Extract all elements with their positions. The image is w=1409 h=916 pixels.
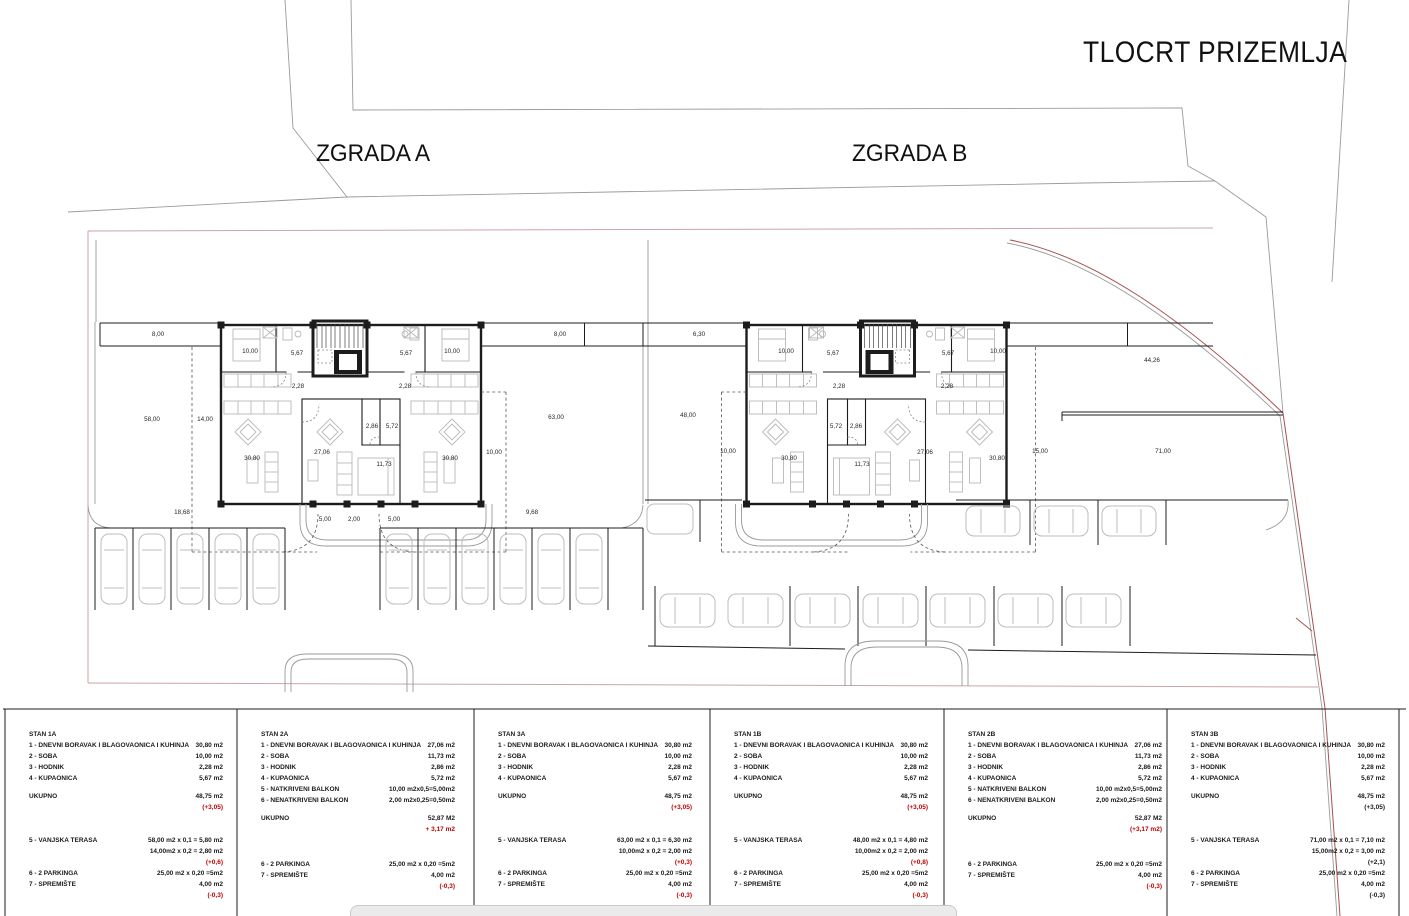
row-label: 3 - HODNIK	[968, 762, 1003, 773]
row-value: 2,28 m2	[199, 762, 223, 773]
legend-row: (+2,1)	[1191, 857, 1385, 868]
row-label: 5 - VANJSKA TERASA	[29, 835, 97, 846]
row-value: (-0,3)	[912, 890, 928, 901]
row-value: 4,00 m2	[1361, 879, 1385, 890]
spacer	[261, 806, 455, 813]
apartment-panel-title: STAN 3B	[1191, 729, 1385, 740]
building-a-label: ZGRADA A	[316, 140, 430, 168]
legend-row: (-0,3)	[968, 881, 1162, 892]
row-value: 48,00 m2 x 0,1 = 4,80 m2	[853, 835, 928, 846]
dimension-label: 8,00	[152, 331, 165, 338]
row-value: 27,06 m2	[1135, 740, 1162, 751]
spacer	[29, 813, 223, 835]
building-b-extras	[1062, 323, 1283, 421]
row-value: 5,67 m2	[1361, 773, 1385, 784]
row-value: (+3,05)	[671, 802, 692, 813]
legend-row: 7 - SPREMIŠTE4,00 m2	[734, 879, 928, 890]
apartment-panel-stan-3b: STAN 3B1 - DNEVNI BORAVAK I BLAGOVAONICA…	[1167, 709, 1397, 916]
row-label: 5 - VANJSKA TERASA	[734, 835, 802, 846]
dimension-label: 30,80	[244, 455, 260, 462]
legend-row: 6 - 2 PARKINGA25,00 m2 x 0,20 =5m2	[1191, 868, 1385, 879]
legend-row: 2 - SOBA10,00 m2	[734, 751, 928, 762]
dimension-label: 5,67	[400, 350, 413, 357]
legend-row: 6 - NENATKRIVENI BALKON2,00 m2x0,25=0,50…	[261, 795, 455, 806]
row-value: 11,73 m2	[1135, 751, 1162, 762]
legend-row: 4 - KUPAONICA5,67 m2	[1191, 773, 1385, 784]
spacer	[734, 813, 928, 835]
legend-row: (+0,3)	[498, 857, 692, 868]
legend-row: 2 - SOBA10,00 m2	[1191, 751, 1385, 762]
dimension-label: 5,00	[319, 516, 332, 523]
dimension-label: 5,72	[830, 423, 843, 430]
page-title: TLOCRT PRIZEMLJA	[1083, 36, 1347, 70]
legend-row: 4 - KUPAONICA5,67 m2	[734, 773, 928, 784]
legend-row: 4 - KUPAONICA5,67 m2	[498, 773, 692, 784]
floor-plan-page: 8,008,0010,005,675,6710,002,282,2858,001…	[0, 0, 1409, 916]
dimension-label: 2,28	[399, 383, 412, 390]
spacer	[968, 806, 1162, 813]
row-value: 10,00 m2	[901, 751, 928, 762]
row-value: 5,67 m2	[199, 773, 223, 784]
row-value: 15,00m2 x 0,2 = 3,00 m2	[1312, 846, 1385, 857]
row-value: (+0,8)	[911, 857, 928, 868]
legend-row: UKUPNO48,75 m2	[1191, 791, 1385, 802]
row-label: 5 - VANJSKA TERASA	[498, 835, 566, 846]
row-value: 10,00 m2x0,5=5,00m2	[389, 784, 455, 795]
row-label: 1 - DNEVNI BORAVAK I BLAGOVAONICA I KUHI…	[734, 740, 894, 751]
row-label: UKUPNO	[498, 791, 526, 802]
dimension-label: 8,00	[554, 331, 567, 338]
dimension-label: 44,26	[1144, 357, 1160, 364]
spacer	[498, 813, 692, 835]
legend-row: 5 - VANJSKA TERASA71,00 m2 x 0,1 = 7,10 …	[1191, 835, 1385, 846]
dimension-label: 2,28	[292, 383, 305, 390]
dimension-label: 5,67	[942, 350, 955, 357]
row-label: 1 - DNEVNI BORAVAK I BLAGOVAONICA I KUHI…	[261, 740, 421, 751]
row-label: 6 - 2 PARKINGA	[29, 868, 78, 879]
apartment-panel-title: STAN 2A	[261, 729, 455, 740]
row-value: 10,00 m2	[196, 751, 223, 762]
row-value: (+0,6)	[206, 857, 223, 868]
row-label: 7 - SPREMIŠTE	[734, 879, 781, 890]
legend-row: 5 - VANJSKA TERASA58,00 m2 x 0,1 = 5,80 …	[29, 835, 223, 846]
row-label: 3 - HODNIK	[261, 762, 296, 773]
row-value: 27,06 m2	[428, 740, 455, 751]
row-value: 25,00 m2 x 0,20 =5m2	[1096, 859, 1162, 870]
dimension-label: 5,67	[291, 350, 304, 357]
building-a	[100, 321, 643, 552]
spacer	[968, 835, 1162, 859]
dimension-label: 27,06	[917, 449, 933, 456]
apartment-panel-stan-1a: STAN 1A1 - DNEVNI BORAVAK I BLAGOVAONICA…	[5, 709, 235, 916]
row-label: 2 - SOBA	[261, 751, 289, 762]
dimension-label: 63,00	[548, 414, 564, 421]
dimension-label: 10,00	[486, 449, 502, 456]
spacer	[29, 784, 223, 791]
row-value: 4,00 m2	[904, 879, 928, 890]
site-boundary	[88, 228, 1318, 687]
row-value: 10,00m2 x 0,2 = 2,00 m2	[855, 846, 928, 857]
legend-row: (+0,6)	[29, 857, 223, 868]
legend-row: 3 - HODNIK2,28 m2	[29, 762, 223, 773]
legend-row: 3 - HODNIK2,28 m2	[498, 762, 692, 773]
row-label: 4 - KUPAONICA	[1191, 773, 1239, 784]
legend-row: 6 - 2 PARKINGA25,00 m2 x 0,20 =5m2	[261, 859, 455, 870]
legend-row: (+3,17 m2)	[968, 824, 1162, 835]
dimension-label: 2,00	[348, 516, 361, 523]
legend-row: 7 - SPREMIŠTE4,00 m2	[1191, 879, 1385, 890]
row-value: 11,73 m2	[428, 751, 455, 762]
parking-area-b	[645, 500, 1316, 686]
dimension-label: 30,80	[442, 455, 458, 462]
dimension-label: 2,28	[833, 383, 846, 390]
legend-row: 2 - SOBA10,00 m2	[29, 751, 223, 762]
dimension-label: 5,67	[827, 350, 840, 357]
apartment-panel-title: STAN 1A	[29, 729, 223, 740]
row-value: 25,00 m2 x 0,20 =5m2	[862, 868, 928, 879]
row-value: 52,87 M2	[428, 813, 455, 824]
dimension-label: 10,00	[720, 448, 736, 455]
apartment-panel-stan-3a: STAN 3A1 - DNEVNI BORAVAK I BLAGOVAONICA…	[474, 709, 704, 916]
spacer	[734, 784, 928, 791]
row-value: 2,86 m2	[1138, 762, 1162, 773]
apartment-panel-title: STAN 1B	[734, 729, 928, 740]
row-value: 4,00 m2	[1138, 870, 1162, 881]
legend-row: 5 - NATKRIVENI BALKON10,00 m2x0,5=5,00m2	[968, 784, 1162, 795]
row-value: (-0,3)	[207, 890, 223, 901]
legend-row: (+3,05)	[1191, 802, 1385, 813]
row-label: 3 - HODNIK	[1191, 762, 1226, 773]
legend-row: 1 - DNEVNI BORAVAK I BLAGOVAONICA I KUHI…	[498, 740, 692, 751]
row-value: 30,80 m2	[196, 740, 223, 751]
legend-row: (-0,3)	[734, 890, 928, 901]
row-label: UKUPNO	[1191, 791, 1219, 802]
row-value: 2,00 m2x0,25=0,50m2	[389, 795, 455, 806]
legend-row: 1 - DNEVNI BORAVAK I BLAGOVAONICA I KUHI…	[29, 740, 223, 751]
building-b	[585, 321, 1128, 552]
row-label: 1 - DNEVNI BORAVAK I BLAGOVAONICA I KUHI…	[968, 740, 1128, 751]
row-value: 25,00 m2 x 0,20 =5m2	[1319, 868, 1385, 879]
row-label: 6 - NENATKRIVENI BALKON	[261, 795, 348, 806]
legend-row: UKUPNO48,75 m2	[498, 791, 692, 802]
legend: STAN 1A1 - DNEVNI BORAVAK I BLAGOVAONICA…	[0, 709, 1409, 916]
apartment-panel-stan-1b: STAN 1B1 - DNEVNI BORAVAK I BLAGOVAONICA…	[710, 709, 940, 916]
dimension-label: 30,80	[989, 455, 1005, 462]
legend-row: 1 - DNEVNI BORAVAK I BLAGOVAONICA I KUHI…	[968, 740, 1162, 751]
row-label: UKUPNO	[29, 791, 57, 802]
legend-row: 2 - SOBA11,73 m2	[261, 751, 455, 762]
legend-row: 4 - KUPAONICA5,67 m2	[29, 773, 223, 784]
dimension-label: 2,28	[941, 383, 954, 390]
dimension-label: 5,00	[388, 516, 401, 523]
legend-row: 5 - VANJSKA TERASA63,00 m2 x 0,1 = 6,30 …	[498, 835, 692, 846]
row-value: 2,28 m2	[904, 762, 928, 773]
row-label: 6 - 2 PARKINGA	[968, 859, 1017, 870]
legend-row: (+3,05)	[498, 802, 692, 813]
row-value: + 3,17 m2	[426, 824, 455, 835]
legend-row: 7 - SPREMIŠTE4,00 m2	[498, 879, 692, 890]
legend-row: 10,00m2 x 0,2 = 2,00 m2	[498, 846, 692, 857]
row-value: 25,00 m2 x 0,20 =5m2	[157, 868, 223, 879]
row-value: 48,75 m2	[665, 791, 692, 802]
row-label: UKUPNO	[261, 813, 289, 824]
row-value: 10,00m2 x 0,2 = 2,00 m2	[619, 846, 692, 857]
row-label: 1 - DNEVNI BORAVAK I BLAGOVAONICA I KUHI…	[1191, 740, 1351, 751]
row-value: (+3,05)	[907, 802, 928, 813]
row-label: 7 - SPREMIŠTE	[498, 879, 545, 890]
legend-row: (-0,3)	[1191, 890, 1385, 901]
row-value: 48,75 m2	[1358, 791, 1385, 802]
row-label: 3 - HODNIK	[29, 762, 64, 773]
row-value: 71,00 m2 x 0,1 = 7,10 m2	[1310, 835, 1385, 846]
row-label: 4 - KUPAONICA	[498, 773, 546, 784]
legend-row: 3 - HODNIK2,28 m2	[1191, 762, 1385, 773]
legend-row: UKUPNO48,75 m2	[29, 791, 223, 802]
legend-row: 4 - KUPAONICA5,72 m2	[968, 773, 1162, 784]
row-value: 5,67 m2	[668, 773, 692, 784]
row-value: 48,75 m2	[901, 791, 928, 802]
dimension-label: 10,00	[242, 348, 258, 355]
legend-row: UKUPNO48,75 m2	[734, 791, 928, 802]
legend-row: 3 - HODNIK2,86 m2	[261, 762, 455, 773]
row-value: (-0,3)	[676, 890, 692, 901]
legend-row: 6 - 2 PARKINGA25,00 m2 x 0,20 =5m2	[968, 859, 1162, 870]
row-label: 5 - NATKRIVENI BALKON	[261, 784, 339, 795]
legend-row: 7 - SPREMIŠTE4,00 m2	[29, 879, 223, 890]
row-value: 14,00m2 x 0,2 = 2,80 m2	[150, 846, 223, 857]
row-value: 2,86 m2	[431, 762, 455, 773]
dimension-label: 58,00	[144, 416, 160, 423]
row-label: 4 - KUPAONICA	[261, 773, 309, 784]
row-label: 4 - KUPAONICA	[734, 773, 782, 784]
row-value: (-0,3)	[1369, 890, 1385, 901]
row-value: 63,00 m2 x 0,1 = 6,30 m2	[617, 835, 692, 846]
row-label: 5 - VANJSKA TERASA	[1191, 835, 1259, 846]
row-label: 2 - SOBA	[29, 751, 57, 762]
apartment-panel-title: STAN 3A	[498, 729, 692, 740]
spacer	[498, 784, 692, 791]
legend-row: 10,00m2 x 0,2 = 2,00 m2	[734, 846, 928, 857]
row-label: 4 - KUPAONICA	[968, 773, 1016, 784]
row-value: 30,80 m2	[1358, 740, 1385, 751]
row-value: 4,00 m2	[668, 879, 692, 890]
legend-row: 4 - KUPAONICA5,72 m2	[261, 773, 455, 784]
legend-row: 6 - NENATKRIVENI BALKON2,00 m2x0,25=0,50…	[968, 795, 1162, 806]
legend-row: (-0,3)	[29, 890, 223, 901]
legend-row: 14,00m2 x 0,2 = 2,80 m2	[29, 846, 223, 857]
legend-row: 5 - VANJSKA TERASA48,00 m2 x 0,1 = 4,80 …	[734, 835, 928, 846]
row-value: 52,87 M2	[1135, 813, 1162, 824]
car-icons-b-top	[966, 506, 1156, 536]
dimension-label: 71,00	[1155, 448, 1171, 455]
row-label: 7 - SPREMIŠTE	[1191, 879, 1238, 890]
row-value: (+3,17 m2)	[1130, 824, 1162, 835]
dimension-label: 9,68	[526, 509, 539, 516]
row-value: (+3,05)	[1364, 802, 1385, 813]
row-value: (+3,05)	[202, 802, 223, 813]
legend-row: 15,00m2 x 0,2 = 3,00 m2	[1191, 846, 1385, 857]
row-label: 6 - 2 PARKINGA	[261, 859, 310, 870]
row-label: 7 - SPREMIŠTE	[261, 870, 308, 881]
spacer	[1191, 784, 1385, 791]
row-value: 10,00 m2x0,5=5,00m2	[1096, 784, 1162, 795]
legend-row: (+0,8)	[734, 857, 928, 868]
legend-row: 3 - HODNIK2,86 m2	[968, 762, 1162, 773]
apartment-panel-stan-2b: STAN 2B1 - DNEVNI BORAVAK I BLAGOVAONICA…	[944, 709, 1174, 916]
legend-row: 1 - DNEVNI BORAVAK I BLAGOVAONICA I KUHI…	[261, 740, 455, 751]
row-label: 2 - SOBA	[734, 751, 762, 762]
dimension-labels: 8,008,0010,005,675,6710,002,282,2858,001…	[144, 331, 1171, 523]
dimension-label: 30,80	[781, 455, 797, 462]
row-value: 2,28 m2	[668, 762, 692, 773]
legend-row: 7 - SPREMIŠTE4,00 m2	[968, 870, 1162, 881]
dimension-label: 15,00	[1032, 448, 1048, 455]
row-value: 4,00 m2	[431, 870, 455, 881]
bottom-overlay-bar	[350, 905, 957, 916]
car-icons-a	[101, 534, 602, 604]
legend-row: 7 - SPREMIŠTE4,00 m2	[261, 870, 455, 881]
legend-row: 1 - DNEVNI BORAVAK I BLAGOVAONICA I KUHI…	[734, 740, 928, 751]
row-label: 6 - 2 PARKINGA	[498, 868, 547, 879]
row-label: UKUPNO	[734, 791, 762, 802]
legend-row: (-0,3)	[261, 881, 455, 892]
dimension-label: 6,30	[693, 331, 706, 338]
legend-row: (+3,05)	[734, 802, 928, 813]
dimension-label: 5,72	[386, 423, 399, 430]
spacer	[261, 835, 455, 859]
legend-row: UKUPNO52,87 M2	[261, 813, 455, 824]
row-value: (+0,3)	[675, 857, 692, 868]
row-label: 1 - DNEVNI BORAVAK I BLAGOVAONICA I KUHI…	[498, 740, 658, 751]
row-value: 58,00 m2 x 0,1 = 5,80 m2	[148, 835, 223, 846]
row-value: 25,00 m2 x 0,20 =5m2	[389, 859, 455, 870]
apartment-panel-title: STAN 2B	[968, 729, 1162, 740]
row-label: 2 - SOBA	[498, 751, 526, 762]
kitchen-counter-icon	[224, 374, 478, 414]
row-value: 25,00 m2 x 0,20 =5m2	[626, 868, 692, 879]
row-value: (-0,3)	[1146, 881, 1162, 892]
row-value: 30,80 m2	[665, 740, 692, 751]
row-label: 6 - NENATKRIVENI BALKON	[968, 795, 1055, 806]
row-value: 48,75 m2	[196, 791, 223, 802]
legend-row: 6 - 2 PARKINGA25,00 m2 x 0,20 =5m2	[29, 868, 223, 879]
row-value: 10,00 m2	[665, 751, 692, 762]
dimension-label: 14,00	[197, 416, 213, 423]
legend-row: + 3,17 m2	[261, 824, 455, 835]
dimension-label: 27,06	[314, 449, 330, 456]
row-value: 2,00 m2x0,25=0,50m2	[1096, 795, 1162, 806]
row-value: 5,67 m2	[904, 773, 928, 784]
legend-row: (-0,3)	[498, 890, 692, 901]
building-b-label: ZGRADA B	[852, 140, 967, 168]
dimension-label: 2,86	[366, 423, 379, 430]
row-label: 5 - NATKRIVENI BALKON	[968, 784, 1046, 795]
dimension-label: 11,73	[376, 461, 392, 468]
dimension-label: 11,73	[854, 461, 870, 468]
row-label: 7 - SPREMIŠTE	[968, 870, 1015, 881]
row-value: 5,72 m2	[1138, 773, 1162, 784]
row-label: 3 - HODNIK	[734, 762, 769, 773]
row-label: 6 - 2 PARKINGA	[734, 868, 783, 879]
legend-row: 5 - NATKRIVENI BALKON10,00 m2x0,5=5,00m2	[261, 784, 455, 795]
legend-row: 2 - SOBA10,00 m2	[498, 751, 692, 762]
row-value: (+2,1)	[1368, 857, 1385, 868]
row-value: 5,72 m2	[431, 773, 455, 784]
row-label: 6 - 2 PARKINGA	[1191, 868, 1240, 879]
row-label: 4 - KUPAONICA	[29, 773, 77, 784]
dimension-label: 10,00	[990, 348, 1006, 355]
row-label: 2 - SOBA	[968, 751, 996, 762]
dimension-label: 48,00	[680, 412, 696, 419]
legend-row: 3 - HODNIK2,28 m2	[734, 762, 928, 773]
apartment-panel-stan-2a: STAN 2A1 - DNEVNI BORAVAK I BLAGOVAONICA…	[237, 709, 467, 916]
row-value: 4,00 m2	[199, 879, 223, 890]
dimension-label: 18,68	[174, 509, 190, 516]
row-value: 10,00 m2	[1358, 751, 1385, 762]
row-label: 1 - DNEVNI BORAVAK I BLAGOVAONICA I KUHI…	[29, 740, 189, 751]
row-value: (-0,3)	[439, 881, 455, 892]
row-label: 2 - SOBA	[1191, 751, 1219, 762]
row-label: UKUPNO	[968, 813, 996, 824]
legend-row: 6 - 2 PARKINGA25,00 m2 x 0,20 =5m2	[734, 868, 928, 879]
spacer	[1191, 813, 1385, 835]
legend-row: 2 - SOBA11,73 m2	[968, 751, 1162, 762]
dimension-label: 10,00	[444, 348, 460, 355]
parking-area-a	[88, 505, 643, 692]
car-icons-b-bottom	[660, 594, 1121, 627]
legend-row: UKUPNO52,87 M2	[968, 813, 1162, 824]
dimension-label: 10,00	[778, 348, 794, 355]
row-value: 2,28 m2	[1361, 762, 1385, 773]
row-value: 30,80 m2	[901, 740, 928, 751]
dimension-label: 2,86	[850, 423, 863, 430]
legend-row: 6 - 2 PARKINGA25,00 m2 x 0,20 =5m2	[498, 868, 692, 879]
legend-row: (+3,05)	[29, 802, 223, 813]
stairs-icon	[317, 324, 363, 348]
legend-row: 1 - DNEVNI BORAVAK I BLAGOVAONICA I KUHI…	[1191, 740, 1385, 751]
row-label: 7 - SPREMIŠTE	[29, 879, 76, 890]
row-label: 3 - HODNIK	[498, 762, 533, 773]
